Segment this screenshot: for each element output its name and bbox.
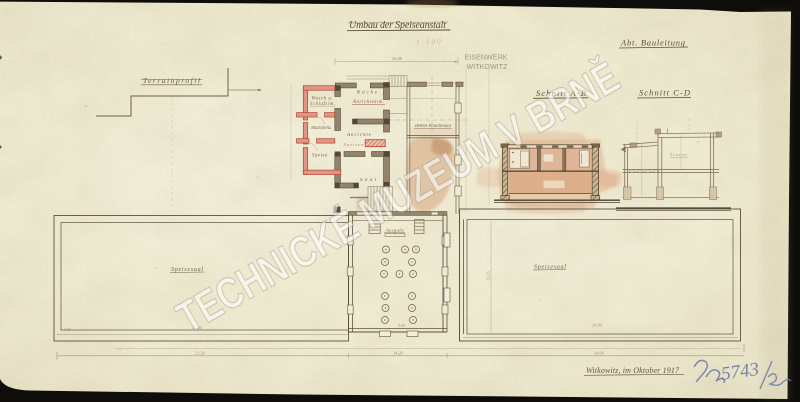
svg-text:Betten-Wäschesaal: Betten-Wäschesaal (415, 124, 452, 129)
svg-text:9.60: 9.60 (398, 323, 405, 328)
svg-text:WITKOWITZ: WITKOWITZ (467, 64, 509, 71)
svg-text:Küche: Küche (356, 90, 378, 95)
svg-text:Anrichtezim.: Anrichtezim. (352, 100, 384, 105)
svg-text:24.00: 24.00 (592, 323, 603, 328)
svg-text:24.00: 24.00 (392, 56, 403, 61)
svg-text:14.20: 14.20 (393, 351, 404, 356)
svg-text:Umbau der Speiseanstalt: Umbau der Speiseanstalt (349, 20, 446, 31)
svg-text:21.20: 21.20 (195, 351, 206, 356)
svg-text:EISENWERK: EISENWERK (465, 55, 508, 62)
svg-text:Wasch u.: Wasch u. (312, 96, 333, 101)
svg-text:15.35: 15.35 (486, 270, 491, 281)
svg-text:Speise: Speise (312, 154, 328, 159)
svg-text:Mädchenz.: Mädchenz. (310, 126, 332, 131)
svg-text:Schnitt C-D: Schnitt C-D (639, 88, 691, 98)
svg-text:Fenster: Fenster (669, 152, 687, 157)
svg-text:24.00: 24.00 (594, 351, 605, 356)
svg-text:Witkowitz, im Oktober 1917: Witkowitz, im Oktober 1917 (586, 366, 680, 375)
svg-text:Speisen: Speisen (344, 142, 365, 147)
svg-text:4.70: 4.70 (63, 327, 71, 332)
svg-text:Abt. Bauleitung: Abt. Bauleitung (620, 38, 685, 48)
svg-text:Anrichte: Anrichte (346, 133, 372, 138)
